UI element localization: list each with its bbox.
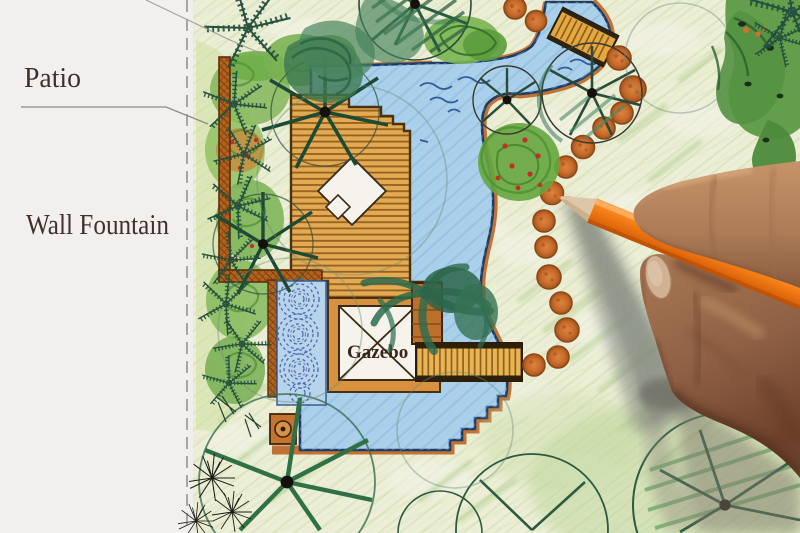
svg-text:Wall Fountain: Wall Fountain — [26, 210, 169, 241]
svg-text:Patio: Patio — [24, 63, 81, 94]
